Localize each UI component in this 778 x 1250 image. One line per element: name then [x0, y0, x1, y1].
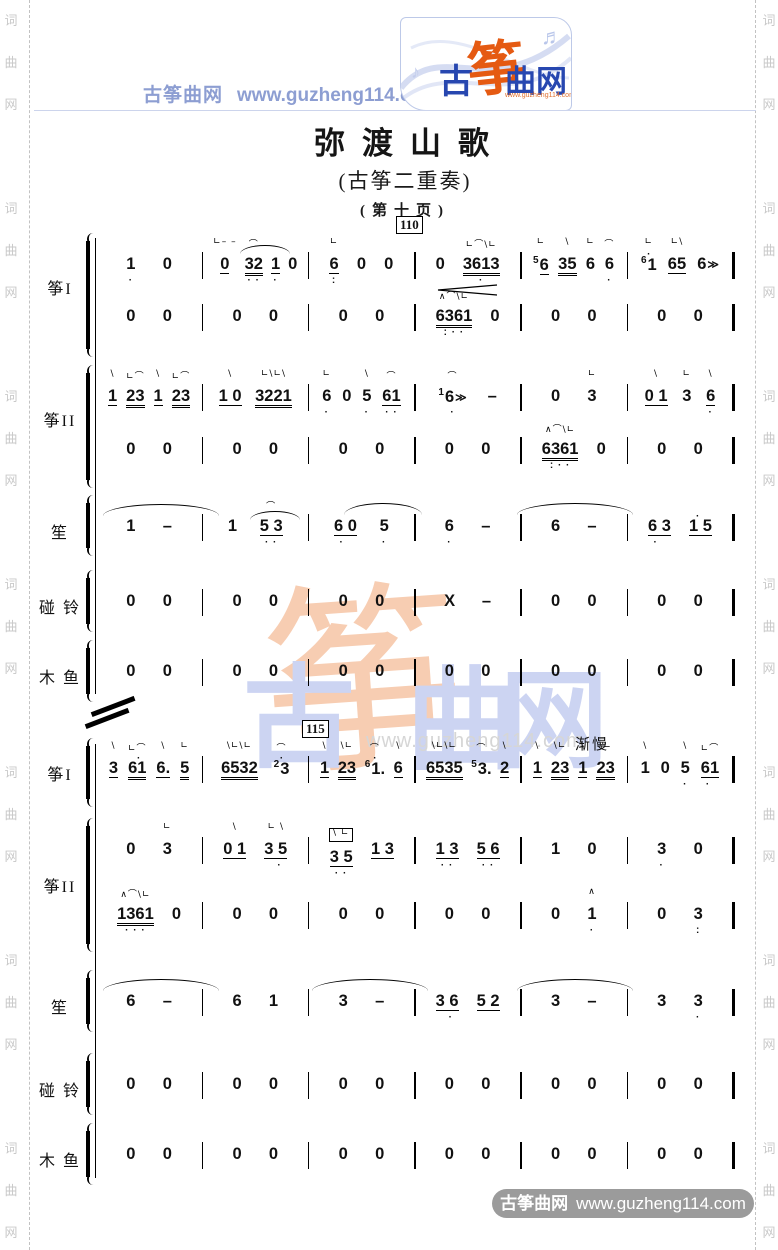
note-digits: 6 0: [334, 517, 357, 536]
finger-marks: [269, 1057, 278, 1069]
measure: ∟ 6· 0 \ 5·⌒ 61· ·: [308, 369, 414, 415]
note-main: 6: [126, 992, 135, 1012]
finger-marks: [232, 644, 241, 656]
octave-dots-below: [232, 925, 241, 933]
finger-marks: [163, 1127, 172, 1139]
note-unit: 0: [339, 1127, 348, 1173]
finger-marks: ∟⌒: [126, 369, 145, 381]
note-unit: 0: [657, 887, 666, 933]
note-main: 6: [329, 255, 338, 275]
finger-marks: [232, 1127, 241, 1139]
finger-marks: [445, 499, 454, 511]
octave-dots-below: [694, 1095, 703, 1103]
note-digits: 5: [681, 759, 690, 777]
octave-dots-below: [481, 682, 490, 690]
note-main: 6532: [221, 759, 258, 779]
note-main: 0: [551, 387, 560, 407]
octave-dots-below: [657, 1165, 666, 1173]
octave-dots-below: [163, 860, 172, 868]
octave-dots-below: [109, 779, 118, 787]
note-main: 0: [657, 307, 666, 327]
note-main: 1 5: [689, 517, 712, 537]
octave-dots-below: ·: [604, 275, 614, 283]
note-digits: 0: [163, 1145, 172, 1163]
note-main: 1: [587, 905, 596, 925]
note-unit: 0: [694, 644, 703, 690]
note-digits: 0: [126, 440, 135, 458]
note-unit: 0: [587, 289, 596, 335]
finger-marks: \: [706, 369, 715, 381]
note-unit: ∟ 3: [587, 369, 596, 415]
octave-dots-below: [126, 407, 145, 415]
finger-marks: [163, 422, 172, 434]
note-unit: 0: [269, 574, 278, 620]
note-digits: 0: [587, 1145, 596, 1163]
note-digits: 3: [109, 759, 118, 778]
note-main: 0: [126, 1145, 135, 1165]
octave-dots-below: [533, 779, 542, 787]
note-digits: 0: [587, 592, 596, 610]
measure: 0 0: [627, 644, 733, 690]
note-unit: \ 2: [500, 741, 509, 787]
note-unit: ∧ 1·: [587, 887, 596, 933]
note-unit: 0: [163, 1057, 172, 1103]
note-main: 23: [338, 759, 356, 779]
note-unit: 0: [657, 422, 666, 468]
octave-dots-below: [163, 275, 172, 283]
finger-marks: \: [362, 369, 371, 381]
note-main: 0: [232, 592, 241, 612]
finger-marks: [587, 574, 596, 586]
note-unit: \∟\∟ 6535: [426, 741, 463, 787]
octave-dots-below: [558, 275, 576, 283]
note-main: 0: [445, 1145, 454, 1165]
measure: 0 3:: [627, 887, 733, 933]
note-main: 5: [380, 517, 389, 537]
note-digits: 0: [375, 592, 384, 610]
note-digits: 0: [694, 307, 703, 325]
note-digits: 6: [322, 387, 331, 405]
octave-dots-below: [426, 779, 463, 787]
barline: [732, 514, 735, 541]
note-main: 0: [163, 592, 172, 612]
note-unit: \∟\∟ 6532: [221, 741, 258, 787]
note-main: 0: [481, 1145, 490, 1165]
note-unit: 0: [163, 289, 172, 335]
finger-marks: ⌒: [260, 499, 283, 511]
note-digits: 0: [657, 440, 666, 458]
finger-marks: [657, 1057, 666, 1069]
octave-dots-below: [375, 612, 384, 620]
note-main: 3 5: [264, 840, 287, 860]
measure: 0 0: [96, 574, 202, 620]
finger-marks: [163, 237, 172, 249]
note-digits: 0: [232, 1145, 241, 1163]
note-unit: ⌒ 16≫·: [438, 369, 466, 415]
note-main: 61: [641, 255, 657, 275]
finger-marks: [444, 574, 455, 586]
note-digits: 0: [490, 307, 499, 325]
note-main: 35: [558, 255, 576, 275]
note-digits: 3 5: [330, 848, 353, 867]
octave-dots-below: [269, 1165, 278, 1173]
note-digits: 0: [587, 840, 596, 858]
note-main: 0: [481, 1075, 490, 1095]
note-digits: 0: [375, 1145, 384, 1163]
sheet-music-page: 词曲网词曲网词曲网词曲网词曲网词曲网词曲网 词曲网词曲网词曲网词曲网词曲网词曲网…: [0, 0, 778, 1250]
octave-dots-below: ·: [657, 860, 666, 868]
note-digits: 1: [533, 759, 542, 778]
note-main: 16≫: [438, 387, 466, 407]
finger-marks: [126, 1057, 135, 1069]
measure: 0 0: [521, 1127, 627, 1173]
note-digits: 3: [280, 760, 289, 778]
note-main: 0: [339, 307, 348, 327]
note-unit: 0: [551, 289, 560, 335]
note-unit: 0: [657, 644, 666, 690]
note-digits: 0: [126, 662, 135, 680]
octave-dots-below: [172, 925, 181, 933]
finger-marks: [126, 574, 135, 586]
note-digits: 3: [657, 840, 666, 858]
octave-dots-below: [232, 460, 241, 468]
note-digits: 3: [339, 992, 348, 1010]
note-unit: 0: [481, 422, 490, 468]
note-unit: ∟ 6: [586, 237, 595, 283]
finger-marks: [269, 1127, 278, 1139]
note-digits: 0: [163, 307, 172, 325]
note-unit: \ 6.: [156, 741, 170, 787]
note-main: 1 0: [219, 387, 242, 407]
note-main: –: [375, 992, 384, 1012]
octave-dots-below: [481, 537, 490, 545]
note-main: 0: [339, 1075, 348, 1095]
note-digits: 3 5: [264, 840, 287, 859]
finger-marks: [488, 369, 497, 381]
finger-marks: [694, 1057, 703, 1069]
finger-marks: [551, 574, 560, 586]
note-digits: 35: [558, 255, 576, 276]
note-unit: 0: [597, 422, 606, 468]
note-unit: 0: [172, 887, 181, 933]
note-digits: 6: [329, 255, 338, 274]
note-digits: 0: [288, 255, 297, 273]
octave-dots-below: [587, 1095, 596, 1103]
measure: ∧⌒\∟ 6361: · · 0: [521, 422, 627, 468]
finger-marks: [172, 887, 181, 899]
note-digits: 0: [551, 662, 560, 680]
note-main: 0: [657, 592, 666, 612]
note-digits: 1: [108, 387, 117, 406]
octave-dots-below: [657, 682, 666, 690]
note-digits: 3: [163, 840, 172, 858]
octave-dots-below: [163, 327, 172, 335]
measure: 0 0: [627, 574, 733, 620]
finger-marks: ∟: [329, 237, 338, 249]
octave-dots-below: ·: [380, 537, 389, 545]
note-digits: 3: [551, 992, 560, 1010]
note-main: 0: [551, 1145, 560, 1165]
finger-marks: [269, 289, 278, 301]
footer-site-badge: 古筝曲网www.guzheng114.com: [492, 1189, 754, 1218]
octave-dots-below: [338, 779, 356, 787]
note-main: 0: [269, 440, 278, 460]
note-digits: 0: [375, 662, 384, 680]
note-main: 0: [375, 905, 384, 925]
note-unit: \∟ 23: [551, 741, 569, 787]
finger-marks: [481, 1057, 490, 1069]
octave-dots-below: [269, 1012, 278, 1020]
measure: 0 ∟ 3: [96, 822, 202, 876]
measure: 0 0: [627, 422, 733, 468]
note-digits: 0: [587, 307, 596, 325]
note-digits: 0: [694, 840, 703, 858]
note-unit: 1·: [271, 237, 280, 283]
note-digits: 3 6: [436, 992, 459, 1011]
measure-number: 110: [396, 216, 423, 234]
note-main: 0: [587, 1145, 596, 1165]
finger-marks: \: [533, 741, 542, 753]
measure: \ 1 \∟ 23 \ 1 \∟ 23: [521, 741, 627, 787]
note-digits: 0: [232, 307, 241, 325]
note-digits: 1: [126, 517, 135, 535]
note-unit: 0: [694, 1127, 703, 1173]
note-main: 53.: [471, 759, 491, 779]
note-digits: 0: [551, 1145, 560, 1163]
octave-dots-below: [587, 537, 596, 545]
finger-marks: [375, 1057, 384, 1069]
note-main: 0: [232, 1145, 241, 1165]
octave-dots-below: [551, 1012, 560, 1020]
finger-marks: \∟: [338, 741, 356, 753]
finger-marks: [375, 644, 384, 656]
octave-dots-below: [126, 1165, 135, 1173]
note-digits: 23: [172, 387, 190, 408]
voice-line: 0 0 0 0 0 0 X – 0 0 0 0: [96, 574, 733, 620]
finger-marks: ∟: [163, 822, 172, 834]
note-unit: 0: [126, 1127, 135, 1173]
note-main: 3 6: [436, 992, 459, 1012]
note-main: 1361: [117, 905, 154, 925]
note-main: 0: [375, 440, 384, 460]
finger-marks: ∟: [586, 237, 595, 249]
finger-marks: [375, 1127, 384, 1139]
note-digits: 0: [481, 1075, 490, 1093]
octave-dots-below: [445, 925, 454, 933]
octave-dots-below: [657, 612, 666, 620]
note-main: 6361: [436, 307, 473, 327]
grace-note: 2: [274, 759, 280, 770]
note-digits: 0: [220, 255, 229, 274]
measure: \ 1 0 \ 5·∟⌒ 61·: [627, 741, 733, 787]
octave-dots-below: [482, 612, 491, 620]
measure: 0 0: [202, 887, 308, 933]
octave-dots-below: [232, 682, 241, 690]
measure: 0 0: [96, 644, 202, 690]
note-digits: 23: [338, 759, 356, 780]
note-main: 0: [126, 840, 135, 860]
note-main: 3: [163, 840, 172, 860]
note-unit: ⌒ 32· ·: [245, 237, 263, 283]
note-digits: 0: [694, 662, 703, 680]
note-main: 0 1: [223, 840, 246, 860]
octave-dots-below: [682, 407, 691, 415]
finger-marks: ∟: [533, 237, 549, 249]
note-digits: 6: [445, 388, 454, 406]
note-main: 0: [269, 1075, 278, 1095]
measure: 0 0: [308, 1127, 414, 1173]
finger-marks: [657, 974, 666, 986]
note-unit: 0: [445, 887, 454, 933]
finger-marks: [126, 644, 135, 656]
note-digits: 0: [232, 592, 241, 610]
octave-dots-below: :: [329, 275, 338, 283]
finger-marks: [694, 887, 703, 899]
octave-dots-below: ·: [706, 407, 715, 415]
note-unit: 1 3: [371, 822, 394, 868]
note-main: 3 5: [329, 848, 353, 868]
note-digits: 0: [587, 1075, 596, 1093]
note-unit: \ 6·: [706, 369, 715, 415]
note-digits: 3: [682, 387, 691, 405]
octave-dots-below: · ·: [329, 868, 353, 876]
octave-dots-below: [587, 1012, 596, 1020]
measure: \∟\∟ 6532 ⌒·23: [202, 741, 308, 787]
note-digits: 0: [126, 307, 135, 325]
note-unit: \ 5·: [681, 741, 690, 787]
finger-marks: [445, 1057, 454, 1069]
finger-marks: [269, 887, 278, 899]
measure: 0 0: [308, 644, 414, 690]
note-unit: 1: [228, 499, 237, 545]
octave-dots-below: [371, 860, 394, 868]
octave-dots-below: [269, 925, 278, 933]
note-unit: 0: [694, 422, 703, 468]
note-unit: 6·: [445, 499, 454, 545]
note-digits: 5: [180, 759, 189, 780]
octave-dots-below: ·: [322, 407, 331, 415]
octave-dots-below: [444, 612, 455, 620]
note-digits: 6535: [426, 759, 463, 780]
note-main: 23: [126, 387, 145, 407]
note-unit: 0: [481, 1057, 490, 1103]
octave-dots-below: [661, 779, 670, 787]
note-unit: \ ∟ 3 5· ·: [329, 822, 353, 876]
note-digits: 2: [500, 759, 509, 778]
note-digits: 0: [694, 1145, 703, 1163]
note-digits: 32: [245, 255, 263, 276]
note-digits: 6: [394, 759, 403, 778]
octave-dots-below: [551, 537, 560, 545]
measure: 6 1: [202, 974, 308, 1020]
note-unit: ∟ \ 3 5 ·: [264, 822, 287, 868]
note-digits: 1: [126, 255, 135, 273]
octave-dots-below: [339, 1012, 348, 1020]
note-main: 0: [375, 662, 384, 682]
measure: 0 0: [521, 289, 627, 335]
note-digits: 0: [339, 307, 348, 325]
note-unit: –: [488, 369, 497, 415]
part-label: 木 鱼: [32, 664, 88, 688]
note-main: 6: [322, 387, 331, 407]
note-main: 0: [587, 307, 596, 327]
measure: 0 0: [308, 574, 414, 620]
octave-dots-below: [375, 925, 384, 933]
note-unit: 0: [551, 369, 560, 415]
note-unit: 6 3·: [648, 499, 671, 545]
octave-dots-below: [551, 407, 560, 415]
octave-dots-below: [657, 1095, 666, 1103]
note-digits: –: [375, 992, 384, 1010]
note-unit: 0: [587, 1127, 596, 1173]
octave-dots-below: ·: [362, 407, 371, 415]
note-unit: 0: [288, 237, 297, 283]
note-main: 0: [232, 905, 241, 925]
note-main: 1: [320, 759, 329, 779]
note-unit: \ 1: [154, 369, 163, 415]
note-digits: 0: [269, 1075, 278, 1093]
note-digits: 6: [232, 992, 241, 1010]
note-unit: –: [482, 574, 491, 620]
measure: \ 1 ∟⌒ 23 \ 1 ∟⌒ 23: [96, 369, 202, 415]
note-unit: \ 1 0: [219, 369, 242, 415]
note-unit: 0: [163, 644, 172, 690]
note-main: 32: [245, 255, 263, 275]
note-unit: \ 1: [108, 369, 117, 415]
note-digits: 0: [657, 1145, 666, 1163]
note-digits: 3: [694, 905, 703, 923]
note-unit: 0: [269, 887, 278, 933]
note-main: 0: [339, 1145, 348, 1165]
finger-marks: [339, 289, 348, 301]
octave-dots-below: [375, 682, 384, 690]
finger-marks: \: [156, 741, 170, 753]
part-label: 筝II: [32, 407, 88, 431]
measure: \ 1 \∟ 23 ⌒·61. \ 6: [308, 741, 414, 787]
note-main: 56: [533, 255, 549, 275]
note-main: 1: [126, 517, 135, 537]
note-main: 6535: [426, 759, 463, 779]
finger-marks: ∟⌒: [172, 369, 191, 381]
finger-marks: [551, 1057, 560, 1069]
barline: [732, 252, 735, 279]
measure: ∧⌒\∟ 1361· · · 0: [96, 887, 202, 933]
finger-marks: [648, 499, 671, 511]
note-main: 0: [126, 1075, 135, 1095]
note-digits: 0: [339, 440, 348, 458]
measure: 0 0: [415, 1057, 521, 1103]
octave-dots-below: [232, 1165, 241, 1173]
measure: 0 0: [96, 422, 202, 468]
finger-marks: [126, 422, 135, 434]
note-main: 0: [339, 662, 348, 682]
note-unit: 0: [657, 1127, 666, 1173]
note-unit: 0: [339, 289, 348, 335]
note-digits: 3: [587, 387, 596, 405]
note-main: 0: [481, 662, 490, 682]
note-main: 0: [597, 440, 606, 460]
finger-marks: ∟: [682, 369, 691, 381]
measure: 6· –: [415, 499, 521, 545]
note-digits: 6: [551, 517, 560, 535]
note-main: 23: [274, 759, 290, 779]
octave-dots-below: [551, 925, 560, 933]
octave-dots-below: [694, 682, 703, 690]
note-main: 0: [694, 307, 703, 327]
voice-line: 1· 0 ∟– – 0 ⌒ 32· · 1· 0 ∟ 6: 0 0 0 ∟⌒\∟…: [96, 237, 733, 283]
note-digits: 23: [126, 387, 144, 408]
note-digits: 65: [668, 255, 686, 274]
